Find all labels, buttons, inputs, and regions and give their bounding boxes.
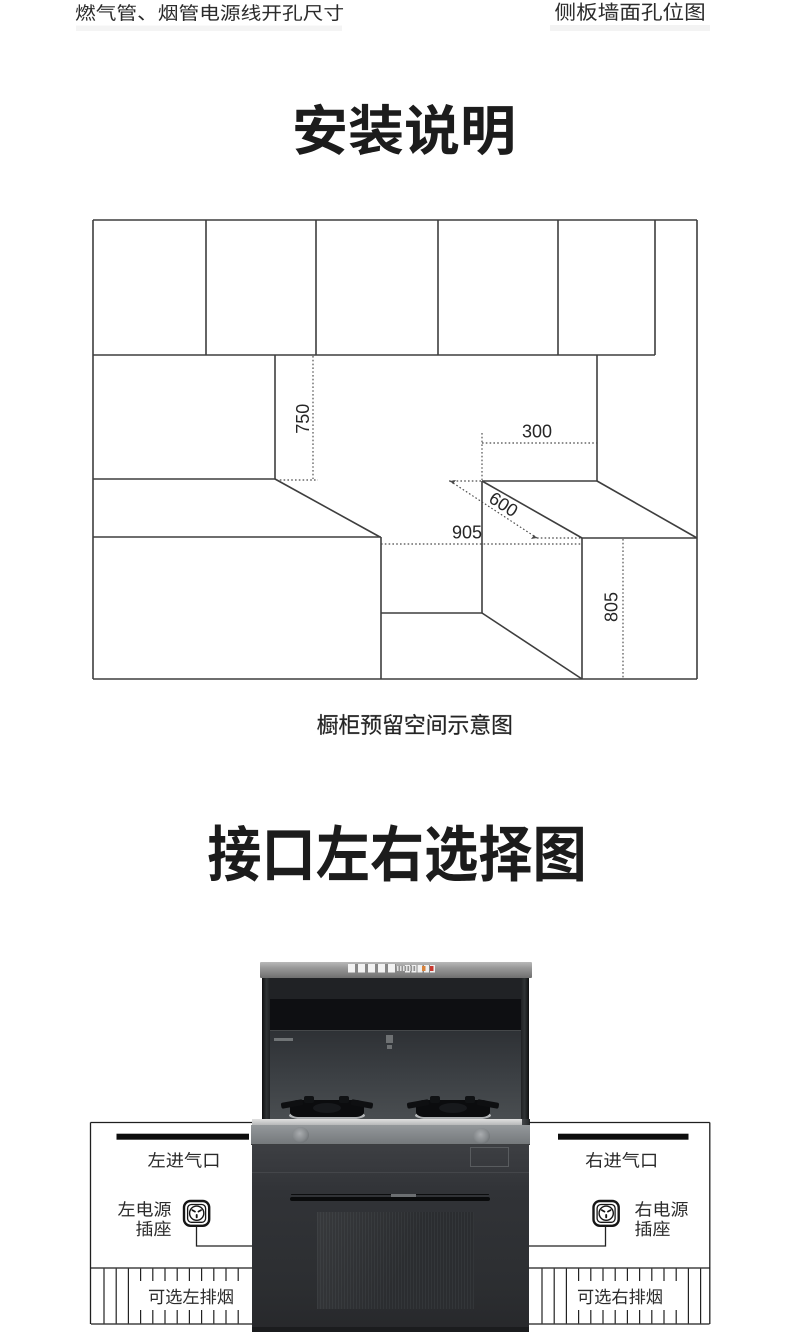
svg-text:805: 805 <box>602 592 622 622</box>
svg-text:750: 750 <box>293 404 313 434</box>
svg-text:300: 300 <box>522 422 552 442</box>
svg-text:600: 600 <box>485 488 521 521</box>
svg-text:905: 905 <box>452 523 482 543</box>
